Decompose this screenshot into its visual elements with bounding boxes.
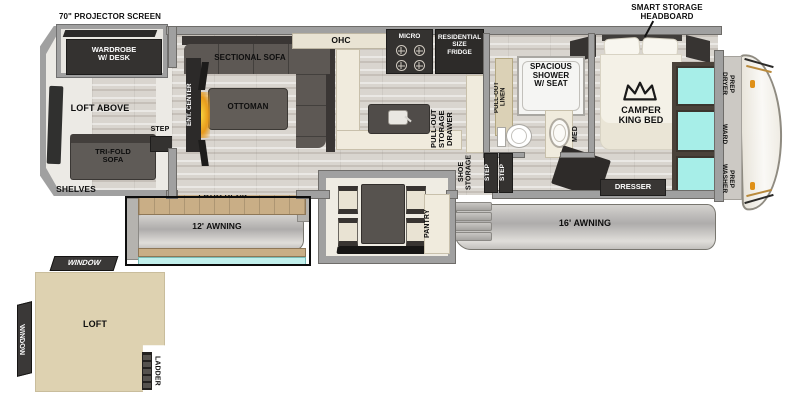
dinette-chair [338,218,358,246]
shoe-storage-label: SHOE STORAGE [458,146,480,198]
rear-divider-bottom [168,148,177,199]
entry-step [454,202,492,211]
projector-screen [63,30,158,37]
rear-tv [47,86,64,164]
crown-icon [618,80,662,104]
loft-room-label: LOFT [55,320,135,330]
dryer-prep-label: DRYER PREP [721,60,741,108]
loft-ladder-label: LADDER [153,346,167,396]
rear-step-label: STEP [144,126,176,134]
bath-wall-bottom [560,152,595,158]
bath-wall-left [483,33,490,158]
wardrobe-desk-label: WARDROBE W/ DESK [66,46,162,63]
deck-outline [125,196,311,266]
micro-label: MICRO [386,33,433,40]
loft-above-label: LOFT ABOVE [54,104,146,114]
entry-step-label: STEP [499,153,513,193]
loft-window-left-label: WINDOW [17,301,32,377]
entry-step [454,222,492,231]
loft-window-top-label: WINDOW [51,259,118,267]
burner-icon [414,60,425,71]
dinette-chair [406,218,426,246]
fireplace-glow [201,92,210,138]
burner-icon [396,60,407,71]
washer-prep-label: WASHER PREP [721,156,741,202]
pantry-label: PANTRY [424,194,450,254]
dinette-chair [406,186,426,214]
ward-label: WARD [721,114,741,154]
entry-step [454,232,492,241]
burner-icon [414,45,425,56]
bath-sink-inner [553,124,566,142]
fridge-label: RESIDENTIAL SIZE FRIDGE [435,34,484,56]
entry-step [454,212,492,221]
awning-16ft-label: 16' AWNING [520,219,650,229]
pullout-linen-label: PULL-OUT LINEN [494,58,514,136]
ohc-label: OHC [292,36,390,45]
dinette-table [361,184,405,244]
dresser-label: DRESSER [600,183,666,191]
bath-wall-right [588,33,595,155]
burner-icon [396,45,407,56]
ent-center-label: ENT. CENTER [186,58,201,152]
camper-king-bed-label: CAMPER KING BED [598,106,684,125]
entry-step-label: STEP [484,153,498,193]
loft-ladder [142,352,152,390]
sectional-sofa-label: SECTIONAL SOFA [186,54,314,63]
floorplan-canvas: 16' AWNING PATIO DECK 12' AWNING 70" PRO… [0,0,800,400]
cap-marker-light [750,80,755,88]
projector-screen-label: 70" PROJECTOR SCREEN [38,13,182,22]
cap-marker-light [750,182,755,190]
ottoman-label: OTTOMAN [208,103,288,112]
shower-label: SPACIOUS SHOWER W/ SEAT [517,63,585,89]
med-cabinet-label: MED [572,116,586,152]
shelves-label: SHELVES [44,185,108,194]
dinette-chair [338,186,358,214]
rear-divider-top [168,26,177,68]
cooktop-burners [394,45,426,69]
tri-fold-sofa-label: TRI-FOLD SOFA [70,148,156,164]
front-cap [738,53,784,210]
pullout-storage-drawer-label: PULL-OUT STORAGE DRAWER [430,94,460,164]
headboard-label: SMART STORAGE HEADBOARD [592,4,742,21]
